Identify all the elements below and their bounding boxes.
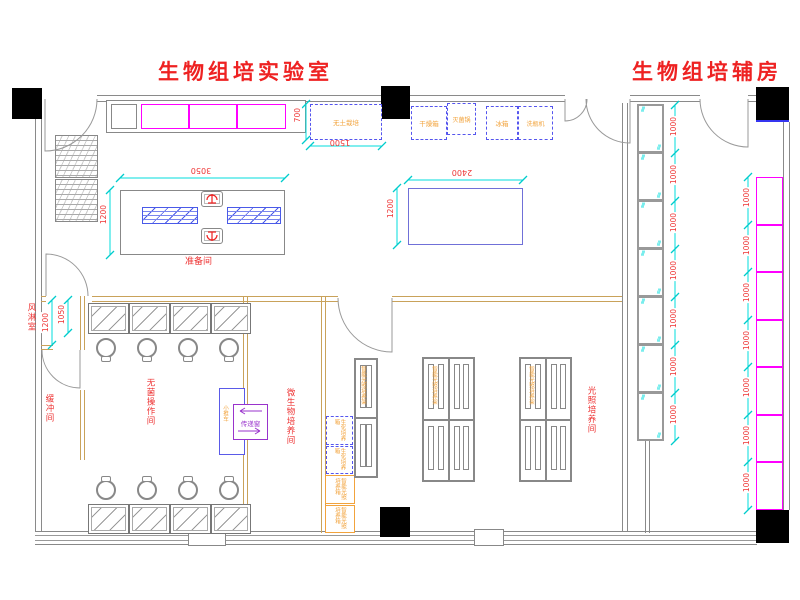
dim-table1-width: 3050 xyxy=(183,166,219,175)
dim-module: 1000 xyxy=(742,472,751,493)
fridge-box: 冰箱 xyxy=(486,106,518,140)
title-aux-room: 生物组培辅房 xyxy=(632,56,782,86)
rack-cell xyxy=(449,420,475,482)
stool-top-1 xyxy=(96,338,116,358)
clean-bench-top-2 xyxy=(129,303,170,334)
dim-soilless-width: 1500 xyxy=(325,138,355,147)
glass-cabinet-cell xyxy=(637,104,664,153)
clean-bench-top-1 xyxy=(88,303,129,334)
sterilizer-label: 灭菌锅 xyxy=(452,115,470,124)
bio-incubator-2-label: 生化培养箱 xyxy=(334,448,346,472)
title-lab-room: 生物组培实验室 xyxy=(158,56,333,86)
dim-module: 1000 xyxy=(669,308,678,329)
wall-right xyxy=(783,122,790,510)
bio-incubator-2: 生化培养箱 xyxy=(326,446,353,474)
rack-cell xyxy=(546,358,572,420)
light-rack-1-label: 智能光照培养架 xyxy=(431,366,437,410)
light-incubator-2: 智能光照培养箱 xyxy=(325,505,355,533)
dim-air-shower: 1200 xyxy=(41,312,50,333)
light-incubator-1: 智能光照培养箱 xyxy=(325,475,355,504)
fridge-label: 冰箱 xyxy=(496,118,509,128)
trolley-label: 小推车 xyxy=(222,405,228,422)
room-label-micro: 微生物培养间 xyxy=(285,388,295,445)
dim-module: 1000 xyxy=(669,212,678,233)
wall-top-2 xyxy=(410,95,565,102)
shelf-unit-1 xyxy=(55,135,98,178)
clean-bench-top-3 xyxy=(170,303,211,334)
dim-module: 1000 xyxy=(669,404,678,425)
shelf-unit-2 xyxy=(55,179,98,222)
wall-airshower-east-2 xyxy=(80,390,85,460)
dryer-label: 干燥箱 xyxy=(419,118,439,128)
stool-bottom-2 xyxy=(137,480,157,500)
glass-cabinet-cell xyxy=(637,392,664,441)
dim-module: 1000 xyxy=(742,377,751,398)
rack-cell xyxy=(423,420,449,482)
counter-end-cabinet xyxy=(111,104,137,129)
window-mullion-2 xyxy=(474,529,504,546)
wall-airshower-east-1 xyxy=(80,296,85,350)
dim-module: 1000 xyxy=(669,356,678,377)
stool-top-4 xyxy=(219,338,239,358)
aux-cabinet-cell xyxy=(756,225,783,272)
stool-bottom-1 xyxy=(96,480,116,500)
wall-cabinet-2 xyxy=(189,104,237,129)
clean-bench-bottom-2 xyxy=(129,504,170,534)
prep-bench-left xyxy=(142,207,198,224)
aux-cabinet-cell xyxy=(756,177,783,225)
rack-cell xyxy=(449,358,475,420)
prep-bench-right xyxy=(227,207,281,224)
clean-bench-top-4 xyxy=(211,303,251,334)
transfer-window-box: 传递窗 xyxy=(233,404,268,440)
dim-module: 1000 xyxy=(742,187,751,208)
soilless-culture-box: 无土栽培 xyxy=(310,104,382,140)
room-label-sterile: 无菌操作间 xyxy=(145,378,155,426)
room-label-buffer: 缓冲间 xyxy=(44,394,54,423)
column-bottom-middle xyxy=(380,507,410,537)
wall-cabinet-3 xyxy=(237,104,286,129)
dim-module: 1000 xyxy=(742,282,751,303)
dim-table2-width: 2400 xyxy=(446,168,478,177)
prep-sink-top xyxy=(201,191,223,207)
wall-divider xyxy=(622,103,628,533)
column-top-middle xyxy=(381,86,410,119)
wall-partition-a1 xyxy=(41,296,46,302)
wall-partition-a3 xyxy=(392,296,622,302)
glass-cabinet-cell xyxy=(637,152,664,201)
wall-airshower-south xyxy=(41,345,53,350)
dim-module: 1000 xyxy=(669,116,678,137)
bottle-washer-label: 洗瓶机 xyxy=(526,119,544,128)
light-rack-1 xyxy=(422,357,475,482)
soilless-culture-label: 无土栽培 xyxy=(333,117,359,127)
stool-bottom-3 xyxy=(178,480,198,500)
rack-cell xyxy=(355,418,377,477)
clean-bench-bottom-1 xyxy=(88,504,129,534)
dim-module: 1000 xyxy=(742,330,751,351)
glass-cabinet-cell xyxy=(637,200,664,249)
rack-cell xyxy=(520,420,546,482)
clean-bench-bottom-3 xyxy=(170,504,211,534)
dryer-box: 干燥箱 xyxy=(411,106,447,140)
glass-cabinet-cell xyxy=(637,296,664,345)
prep-sink-bottom xyxy=(201,228,223,244)
dim-table1-depth: 1200 xyxy=(99,204,108,225)
aux-cabinet-cell xyxy=(756,367,783,415)
dim-table2-depth: 1200 xyxy=(386,198,395,219)
dim-module: 1000 xyxy=(742,425,751,446)
transfer-window-label: 传递窗 xyxy=(234,418,267,428)
stool-top-3 xyxy=(178,338,198,358)
bottle-washer-box: 洗瓶机 xyxy=(518,106,553,140)
aux-cabinet-cell xyxy=(756,320,783,367)
room-label-prep: 准备间 xyxy=(185,254,212,267)
rack-cell xyxy=(355,359,377,418)
room-label-air-shower: 风淋室 xyxy=(26,303,36,332)
light-rack-2 xyxy=(519,357,572,482)
aux-cabinet-cell xyxy=(756,272,783,320)
light-rack-2-label: 智能光照培养架 xyxy=(528,366,534,410)
dim-module: 1000 xyxy=(669,164,678,185)
dim-module: 1000 xyxy=(669,260,678,281)
dim-soilless-depth: 700 xyxy=(293,107,302,123)
light-incubator-2-label: 智能光照培养箱 xyxy=(334,507,346,531)
wall-partition-a2 xyxy=(92,296,338,302)
glass-cabinet-cell xyxy=(637,248,664,297)
room-label-light: 光照培养间 xyxy=(586,386,596,434)
light-rack-wall-label: 智能光照培养架 xyxy=(360,366,366,410)
wall-aux-lower xyxy=(645,441,650,533)
wall-top-3 xyxy=(630,95,700,102)
sterilizer-box: 灭菌锅 xyxy=(447,103,476,135)
aux-cabinet-cell xyxy=(756,462,783,510)
bio-incubator-1: 生化培养箱 xyxy=(326,416,353,445)
stool-top-2 xyxy=(137,338,157,358)
column-top-right xyxy=(756,87,789,122)
stool-bottom-4 xyxy=(219,480,239,500)
dim-module: 1000 xyxy=(742,235,751,256)
bio-incubator-1-label: 生化培养箱 xyxy=(334,419,346,443)
rack-cell xyxy=(546,420,572,482)
column-top-left xyxy=(12,88,42,119)
work-table xyxy=(408,188,523,245)
dim-bench-depth: 1050 xyxy=(57,304,66,325)
clean-bench-bottom-4 xyxy=(211,504,251,534)
aux-cabinet-cell xyxy=(756,415,783,462)
wall-cabinet-1 xyxy=(141,104,189,129)
floor-plan: 无土栽培 干燥箱 灭菌锅 冰箱 洗瓶机 小推车 传递窗 生化培养 xyxy=(0,0,800,600)
light-rack-wall xyxy=(354,358,378,478)
glass-cabinet-cell xyxy=(637,344,664,393)
column-bottom-right xyxy=(756,510,789,543)
light-incubator-1-label: 智能光照培养箱 xyxy=(334,478,346,502)
